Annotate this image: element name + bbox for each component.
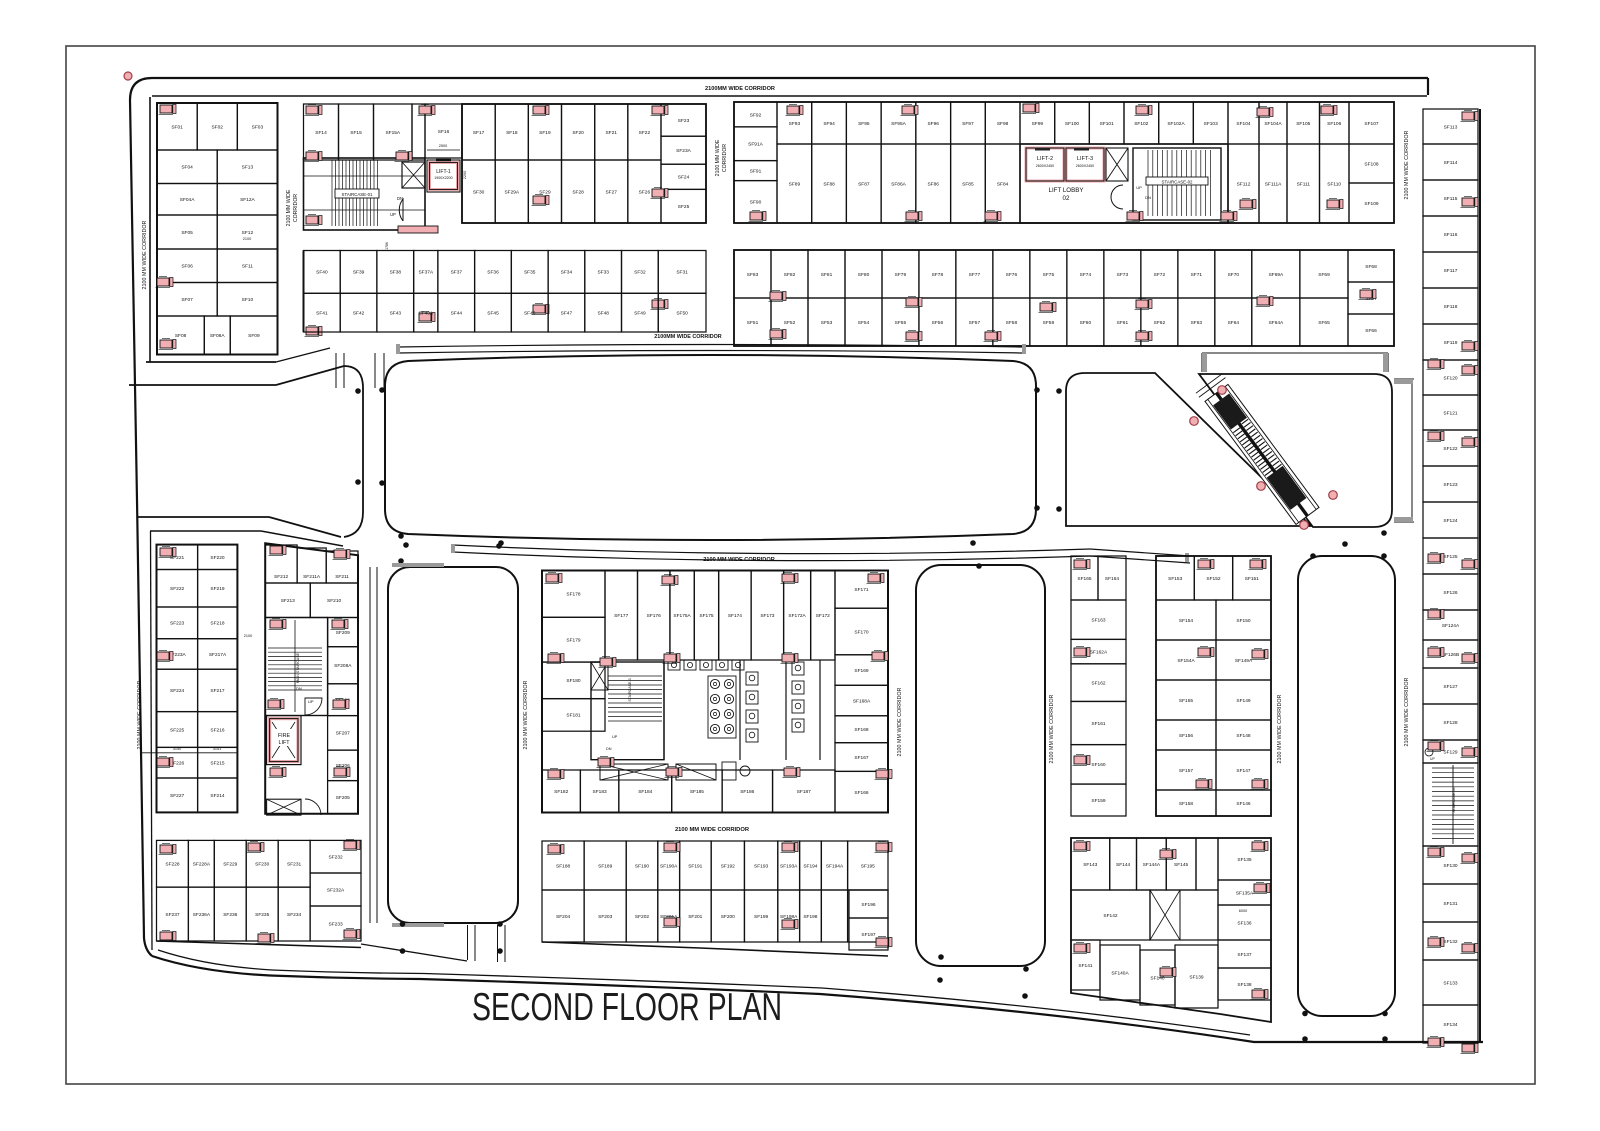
svg-text:SF236A: SF236A: [193, 912, 211, 918]
svg-text:SF204: SF204: [556, 914, 570, 920]
svg-text:2600X2450: 2600X2450: [1036, 164, 1054, 168]
svg-text:SF14: SF14: [315, 130, 327, 136]
svg-text:SF95A: SF95A: [891, 121, 906, 127]
svg-text:SF50: SF50: [676, 310, 688, 316]
svg-text:SF68: SF68: [1365, 264, 1377, 270]
svg-text:SF208A: SF208A: [334, 663, 352, 669]
svg-text:SF216: SF216: [210, 727, 224, 733]
svg-text:SF46: SF46: [524, 310, 536, 316]
svg-text:LIFT LOBBY: LIFT LOBBY: [1049, 187, 1084, 194]
svg-text:SF219: SF219: [210, 586, 224, 592]
svg-text:SF205: SF205: [336, 795, 350, 801]
svg-text:SF104: SF104: [1236, 121, 1250, 127]
svg-text:SF44: SF44: [451, 310, 463, 316]
svg-text:SF135A: SF135A: [1236, 890, 1254, 896]
svg-text:DN: DN: [1145, 195, 1151, 200]
svg-text:SF12: SF12: [242, 230, 254, 236]
svg-text:SF91: SF91: [750, 168, 762, 174]
svg-text:SF98: SF98: [997, 121, 1009, 127]
svg-text:SF72: SF72: [1154, 272, 1166, 278]
svg-text:SF161: SF161: [1091, 721, 1105, 727]
svg-text:UP: UP: [1136, 185, 1142, 190]
svg-text:SF201: SF201: [688, 914, 702, 920]
svg-text:SF122: SF122: [1443, 446, 1457, 452]
svg-text:SF06: SF06: [181, 264, 193, 270]
svg-text:SF184: SF184: [638, 789, 652, 795]
svg-text:SF235: SF235: [255, 912, 269, 918]
svg-text:SF20: SF20: [572, 130, 584, 136]
svg-text:SF149A: SF149A: [1235, 658, 1253, 664]
svg-text:SF66: SF66: [1365, 328, 1377, 334]
svg-text:SF23A: SF23A: [676, 148, 691, 154]
svg-text:SF97: SF97: [962, 121, 974, 127]
svg-text:1786: 1786: [385, 242, 389, 250]
svg-text:SF105: SF105: [1296, 121, 1310, 127]
svg-text:SF163: SF163: [1091, 618, 1105, 624]
svg-text:STAIRCASE-04: STAIRCASE-04: [1452, 787, 1456, 812]
svg-text:SF81: SF81: [821, 272, 833, 278]
svg-text:SF172: SF172: [816, 613, 830, 619]
svg-text:SF112: SF112: [1237, 181, 1251, 187]
svg-text:SF160: SF160: [1091, 762, 1105, 768]
svg-text:LIFT-1: LIFT-1: [436, 169, 451, 175]
svg-text:SF232: SF232: [329, 855, 343, 861]
svg-text:SF178: SF178: [566, 592, 580, 598]
svg-text:SF107: SF107: [1364, 121, 1378, 127]
svg-text:SF15: SF15: [350, 130, 362, 136]
svg-text:SF174: SF174: [728, 613, 742, 619]
svg-text:SF210: SF210: [327, 598, 341, 604]
svg-text:SF74: SF74: [1080, 272, 1092, 278]
svg-text:SF101: SF101: [1100, 121, 1114, 127]
svg-text:SF170: SF170: [854, 629, 868, 635]
svg-text:SF51: SF51: [747, 320, 759, 326]
svg-text:FIRE: FIRE: [278, 733, 291, 739]
svg-text:SF39: SF39: [353, 270, 365, 276]
svg-text:SF126B: SF126B: [1442, 652, 1459, 658]
svg-text:SF217A: SF217A: [209, 652, 227, 658]
svg-text:SF153: SF153: [1168, 576, 1182, 582]
svg-text:2100 MM WIDE CORRIDOR: 2100 MM WIDE CORRIDOR: [897, 687, 903, 756]
svg-text:2200: 2200: [463, 171, 467, 179]
svg-text:2100 MM WIDE: 2100 MM WIDE: [715, 139, 721, 176]
svg-text:2100 MM WIDE: 2100 MM WIDE: [286, 189, 292, 226]
svg-text:SF77: SF77: [969, 272, 981, 278]
svg-text:SF144: SF144: [1116, 862, 1130, 868]
svg-text:SF236: SF236: [223, 912, 237, 918]
svg-text:SF38: SF38: [390, 270, 402, 276]
svg-text:SF162A: SF162A: [1090, 650, 1108, 656]
svg-text:SF168: SF168: [854, 727, 868, 733]
svg-text:SF200: SF200: [721, 914, 735, 920]
svg-text:SF233: SF233: [329, 921, 343, 927]
svg-text:SF08A: SF08A: [210, 333, 225, 339]
svg-text:SF48: SF48: [597, 310, 609, 316]
svg-text:SF191: SF191: [688, 863, 702, 869]
svg-text:DN: DN: [296, 686, 302, 691]
svg-text:SF80: SF80: [858, 272, 870, 278]
svg-text:SF102: SF102: [1134, 121, 1148, 127]
svg-text:SF162: SF162: [1091, 680, 1105, 686]
svg-text:SF214: SF214: [210, 793, 224, 799]
svg-text:SF134: SF134: [1443, 1022, 1457, 1028]
svg-text:SF04A: SF04A: [180, 197, 195, 203]
svg-text:SF63: SF63: [1191, 320, 1203, 326]
svg-text:SF223: SF223: [170, 621, 184, 627]
svg-text:SF119: SF119: [1444, 340, 1458, 346]
svg-text:UP: UP: [612, 735, 618, 739]
svg-text:SF110: SF110: [1327, 181, 1341, 187]
svg-text:SF156: SF156: [1179, 733, 1193, 739]
svg-text:SF73: SF73: [1117, 272, 1129, 278]
svg-text:SF202: SF202: [635, 914, 649, 920]
svg-text:SF96: SF96: [927, 121, 939, 127]
svg-text:SF159: SF159: [1091, 798, 1105, 804]
svg-text:3151: 3151: [213, 747, 221, 751]
svg-text:SECOND FLOOR PLAN: SECOND FLOOR PLAN: [472, 986, 782, 1029]
svg-text:SF52: SF52: [784, 320, 796, 326]
svg-text:SF45: SF45: [487, 310, 499, 316]
svg-text:SF222: SF222: [170, 586, 184, 592]
svg-text:6000: 6000: [1239, 909, 1247, 913]
svg-text:CORRIDOR: CORRIDOR: [722, 144, 728, 172]
svg-text:SF225: SF225: [170, 727, 184, 733]
svg-text:SF36: SF36: [487, 270, 499, 276]
svg-text:SF55: SF55: [895, 320, 907, 326]
svg-text:SF166: SF166: [854, 790, 868, 796]
svg-text:SF12A: SF12A: [240, 197, 255, 203]
svg-text:SF32: SF32: [634, 270, 646, 276]
svg-text:2100 MM WIDE CORRIDOR: 2100 MM WIDE CORRIDOR: [1277, 694, 1283, 763]
svg-text:2600X2450: 2600X2450: [1076, 164, 1094, 168]
svg-text:SF104A: SF104A: [1264, 121, 1282, 127]
svg-text:SF05: SF05: [181, 230, 193, 236]
svg-text:SF196: SF196: [861, 902, 875, 908]
svg-text:UP: UP: [390, 212, 396, 217]
svg-text:SF79: SF79: [895, 272, 907, 278]
svg-text:SF144A: SF144A: [1143, 862, 1161, 868]
svg-text:SF18: SF18: [506, 130, 518, 136]
svg-text:SF154: SF154: [1179, 618, 1193, 624]
svg-text:SF187: SF187: [797, 789, 811, 795]
svg-text:SF180: SF180: [566, 678, 580, 684]
svg-text:SF86A: SF86A: [891, 181, 906, 187]
svg-text:LIFT-3: LIFT-3: [1077, 156, 1093, 162]
svg-text:SF194A: SF194A: [826, 863, 844, 869]
svg-text:2500: 2500: [439, 144, 447, 148]
svg-text:SF03: SF03: [252, 124, 264, 130]
svg-text:SF135: SF135: [1237, 857, 1251, 863]
svg-text:SF218: SF218: [210, 621, 224, 627]
svg-text:STAIRCASE-3: STAIRCASE-3: [628, 678, 632, 701]
svg-text:SF126: SF126: [1443, 590, 1457, 596]
svg-text:SF230: SF230: [255, 862, 269, 868]
svg-text:SF158: SF158: [1179, 801, 1193, 807]
svg-text:SF145: SF145: [1174, 862, 1188, 868]
svg-text:SF228A: SF228A: [193, 862, 211, 868]
svg-text:2100 MM WIDE CORRIDOR: 2100 MM WIDE CORRIDOR: [703, 557, 774, 563]
svg-text:SF41: SF41: [316, 310, 328, 316]
svg-text:SF07: SF07: [181, 297, 193, 303]
svg-text:SF85: SF85: [962, 181, 974, 187]
svg-text:SF192: SF192: [721, 863, 735, 869]
svg-text:SF17: SF17: [473, 130, 485, 136]
svg-text:SF84: SF84: [997, 181, 1009, 187]
svg-text:SF30: SF30: [473, 189, 485, 195]
svg-text:SF115: SF115: [1444, 196, 1458, 202]
svg-text:SF197: SF197: [861, 932, 875, 938]
svg-text:SF132: SF132: [1443, 939, 1457, 945]
svg-text:STAIRCASE-01: STAIRCASE-01: [342, 192, 373, 197]
svg-text:SF116: SF116: [1444, 232, 1458, 238]
svg-text:SF43A: SF43A: [418, 310, 433, 316]
svg-text:SF182: SF182: [554, 789, 568, 795]
svg-text:SF09: SF09: [248, 333, 260, 339]
svg-text:SF139: SF139: [1189, 974, 1203, 980]
svg-text:2100 MM WIDE CORRIDOR: 2100 MM WIDE CORRIDOR: [523, 680, 529, 749]
svg-text:SF175: SF175: [699, 613, 713, 619]
svg-text:SF04: SF04: [181, 165, 193, 171]
svg-text:SF118: SF118: [1444, 304, 1458, 310]
svg-text:SF151: SF151: [1245, 576, 1259, 582]
svg-text:SF168A: SF168A: [853, 698, 871, 704]
svg-text:UP: UP: [308, 699, 314, 704]
svg-text:SF93: SF93: [789, 121, 801, 127]
svg-text:SF65: SF65: [1318, 320, 1330, 326]
svg-text:SF143: SF143: [1083, 862, 1097, 868]
svg-text:SF141: SF141: [1078, 963, 1092, 969]
svg-text:DN: DN: [606, 747, 612, 751]
svg-text:SF129: SF129: [1443, 749, 1457, 755]
svg-text:CORRIDOR: CORRIDOR: [293, 194, 299, 222]
svg-text:SF147: SF147: [1236, 768, 1250, 774]
svg-text:SF211: SF211: [335, 574, 349, 580]
svg-text:SF54: SF54: [858, 320, 870, 326]
svg-text:2100 MM WIDE CORRIDOR: 2100 MM WIDE CORRIDOR: [675, 827, 750, 833]
svg-text:SF179: SF179: [566, 638, 580, 644]
svg-text:UP: UP: [1430, 757, 1435, 761]
svg-text:SF99: SF99: [1032, 121, 1044, 127]
svg-text:SF26: SF26: [639, 189, 651, 195]
svg-text:SF01: SF01: [171, 124, 183, 130]
svg-text:1900X2200: 1900X2200: [434, 176, 452, 180]
svg-text:SF220: SF220: [210, 555, 224, 561]
svg-text:SF16: SF16: [438, 129, 450, 135]
svg-text:SF209: SF209: [336, 630, 350, 636]
svg-text:SF29A: SF29A: [504, 189, 519, 195]
svg-text:SF37: SF37: [451, 270, 463, 276]
svg-text:SF124A: SF124A: [1442, 623, 1460, 629]
svg-text:SF138: SF138: [1237, 982, 1251, 988]
svg-text:SF64A: SF64A: [1269, 320, 1284, 326]
svg-text:SF169: SF169: [854, 668, 868, 674]
svg-text:SF176: SF176: [647, 613, 661, 619]
svg-text:SF31: SF31: [676, 270, 688, 276]
svg-text:SF35: SF35: [524, 270, 536, 276]
svg-text:SF37A: SF37A: [418, 270, 433, 276]
svg-text:SF146: SF146: [1236, 801, 1250, 807]
svg-text:SF69: SF69: [1318, 272, 1330, 278]
svg-text:SF189: SF189: [598, 863, 612, 869]
svg-text:SF70: SF70: [1228, 272, 1240, 278]
svg-text:SF90: SF90: [750, 200, 762, 206]
svg-text:2100 MM WIDE CORRIDOR: 2100 MM WIDE CORRIDOR: [1404, 677, 1410, 746]
svg-text:SF185: SF185: [690, 789, 704, 795]
svg-text:SF25: SF25: [678, 204, 690, 210]
svg-text:SF111A: SF111A: [1265, 181, 1282, 187]
svg-text:SF157: SF157: [1179, 768, 1193, 774]
svg-text:SF62: SF62: [1154, 320, 1166, 326]
svg-text:SF137: SF137: [1237, 952, 1251, 958]
svg-text:SF53: SF53: [821, 320, 833, 326]
svg-text:SF47: SF47: [561, 310, 573, 316]
svg-text:SF198A: SF198A: [780, 914, 798, 920]
svg-text:SF149: SF149: [1236, 698, 1250, 704]
svg-text:SF198: SF198: [803, 914, 817, 920]
svg-text:SF130: SF130: [1443, 863, 1457, 869]
svg-text:SF83: SF83: [747, 272, 759, 278]
svg-text:SF49: SF49: [634, 310, 646, 316]
svg-text:SF133: SF133: [1443, 980, 1457, 986]
svg-text:SF117: SF117: [1444, 268, 1458, 274]
svg-text:SF121: SF121: [1443, 410, 1457, 416]
svg-text:SF33: SF33: [597, 270, 609, 276]
svg-text:SF64: SF64: [1228, 320, 1240, 326]
svg-text:SF19: SF19: [539, 130, 551, 136]
svg-text:SF167: SF167: [854, 755, 868, 761]
svg-text:3150: 3150: [173, 747, 181, 751]
svg-text:SF86: SF86: [927, 181, 939, 187]
svg-text:SF28: SF28: [572, 189, 584, 195]
svg-text:SF56: SF56: [932, 320, 944, 326]
svg-text:SF188: SF188: [556, 863, 570, 869]
svg-text:02: 02: [1063, 195, 1070, 202]
svg-text:SF193: SF193: [754, 863, 768, 869]
svg-text:SF215: SF215: [210, 761, 224, 767]
svg-text:SF94: SF94: [823, 121, 835, 127]
svg-text:SF69A: SF69A: [1269, 272, 1284, 278]
svg-text:SF194: SF194: [803, 863, 817, 869]
svg-text:SF87: SF87: [858, 181, 870, 187]
svg-text:SF91A: SF91A: [748, 142, 763, 148]
svg-text:SF34: SF34: [561, 270, 573, 276]
svg-text:SF152: SF152: [1206, 576, 1220, 582]
svg-text:SF42: SF42: [353, 310, 365, 316]
svg-text:SF148: SF148: [1236, 733, 1250, 739]
svg-text:SF21: SF21: [605, 130, 617, 136]
svg-text:SF177: SF177: [614, 613, 628, 619]
svg-text:SF150: SF150: [1236, 618, 1250, 624]
svg-text:2100 MM WIDE CORRIDOR: 2100 MM WIDE CORRIDOR: [1404, 130, 1410, 199]
svg-text:SF08: SF08: [175, 333, 187, 339]
svg-text:SF171: SF171: [854, 587, 868, 593]
svg-text:SF207: SF207: [336, 731, 350, 737]
svg-text:SF71: SF71: [1191, 272, 1203, 278]
svg-text:STAIRCASE-02: STAIRCASE-02: [1162, 180, 1193, 185]
svg-text:SF15A: SF15A: [385, 130, 400, 136]
svg-text:2100MM WIDE CORRIDOR: 2100MM WIDE CORRIDOR: [705, 86, 775, 92]
svg-text:SF224: SF224: [170, 688, 184, 694]
svg-text:SF125: SF125: [1443, 554, 1457, 560]
svg-text:SF234: SF234: [287, 912, 301, 918]
svg-text:2100MM WIDE CORRIDOR: 2100MM WIDE CORRIDOR: [654, 334, 721, 340]
svg-text:SF92: SF92: [750, 112, 762, 118]
svg-text:LIFT-2: LIFT-2: [1037, 156, 1053, 162]
svg-text:SF203: SF203: [598, 914, 612, 920]
svg-text:SF111: SF111: [1297, 181, 1311, 187]
svg-text:SF95: SF95: [858, 121, 870, 127]
svg-text:SF237: SF237: [165, 912, 179, 918]
svg-text:SF40: SF40: [316, 270, 328, 276]
svg-text:SF154A: SF154A: [1177, 658, 1195, 664]
svg-text:2100 MM WIDE CORRIDOR: 2100 MM WIDE CORRIDOR: [137, 680, 143, 749]
svg-text:SF100: SF100: [1065, 121, 1079, 127]
svg-text:SF173: SF173: [760, 613, 774, 619]
svg-text:SF120: SF120: [1443, 375, 1457, 381]
svg-text:SF217: SF217: [210, 688, 224, 694]
svg-text:2100: 2100: [244, 634, 252, 638]
svg-text:2100 MM WIDE CORRIDOR: 2100 MM WIDE CORRIDOR: [142, 220, 148, 289]
svg-text:SF164: SF164: [1105, 576, 1119, 582]
svg-text:SF13: SF13: [242, 165, 254, 171]
svg-text:SF228: SF228: [165, 862, 179, 868]
svg-text:SF113: SF113: [1444, 124, 1458, 130]
svg-text:SF108: SF108: [1364, 161, 1378, 167]
svg-text:SF229: SF229: [223, 862, 237, 868]
svg-text:SF136: SF136: [1237, 920, 1251, 926]
svg-text:SF10: SF10: [242, 297, 254, 303]
svg-text:SF60: SF60: [1080, 320, 1092, 326]
svg-text:SF165: SF165: [1077, 576, 1091, 582]
svg-text:SF88: SF88: [823, 181, 835, 187]
svg-text:SF61: SF61: [1117, 320, 1129, 326]
svg-text:SF59: SF59: [1043, 320, 1055, 326]
svg-text:SF76: SF76: [1006, 272, 1018, 278]
svg-text:SF102A: SF102A: [1167, 121, 1185, 127]
svg-text:SF27: SF27: [605, 189, 617, 195]
svg-text:SF227: SF227: [170, 793, 184, 799]
svg-text:SF193A: SF193A: [780, 863, 798, 869]
svg-text:SF183: SF183: [593, 789, 607, 795]
svg-text:SF57: SF57: [969, 320, 981, 326]
svg-text:SF232A: SF232A: [327, 887, 345, 893]
svg-text:SF140A: SF140A: [1111, 970, 1129, 976]
svg-text:LIFT: LIFT: [278, 740, 290, 746]
svg-text:SF109: SF109: [1364, 201, 1378, 207]
svg-text:SF43: SF43: [390, 310, 402, 316]
svg-text:SF131: SF131: [1443, 901, 1457, 907]
svg-text:SF11: SF11: [242, 264, 253, 270]
svg-text:SF23: SF23: [678, 118, 690, 124]
svg-text:SF181: SF181: [566, 713, 580, 719]
svg-text:SF24: SF24: [678, 175, 690, 181]
svg-text:SF89: SF89: [789, 181, 801, 187]
svg-text:SF106: SF106: [1327, 121, 1341, 127]
svg-text:SF175A: SF175A: [673, 613, 691, 619]
svg-text:2100 MM WIDE CORRIDOR: 2100 MM WIDE CORRIDOR: [1049, 694, 1055, 763]
svg-text:SF195: SF195: [861, 863, 875, 869]
svg-text:SF124: SF124: [1443, 518, 1457, 524]
svg-text:SF231: SF231: [287, 862, 301, 868]
svg-text:SF190A: SF190A: [660, 863, 678, 869]
svg-text:SF128: SF128: [1443, 720, 1457, 726]
svg-text:SF78: SF78: [932, 272, 944, 278]
svg-text:MAIN STAIRCASE: MAIN STAIRCASE: [296, 652, 300, 683]
svg-text:SF155: SF155: [1179, 698, 1193, 704]
svg-text:SF213: SF213: [281, 598, 295, 604]
svg-text:SF82: SF82: [784, 272, 796, 278]
svg-text:SF58: SF58: [1006, 320, 1018, 326]
